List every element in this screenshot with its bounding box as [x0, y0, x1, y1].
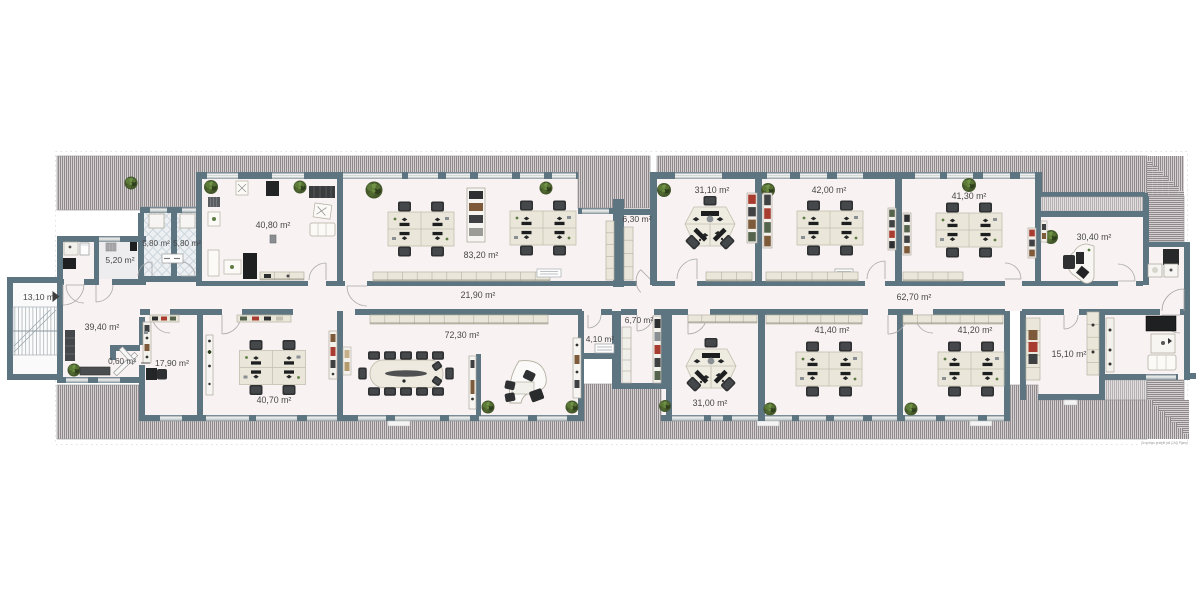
svg-text:72,30 m²: 72,30 m²: [445, 330, 480, 340]
svg-text:83,20 m²: 83,20 m²: [464, 250, 499, 260]
svg-text:41,20 m²: 41,20 m²: [958, 325, 993, 335]
svg-text:41,40 m²: 41,40 m²: [815, 325, 850, 335]
svg-text:39,40 m²: 39,40 m²: [85, 322, 120, 332]
svg-text:Grundriss erstellt mit CAD Pla: Grundriss erstellt mit CAD Planer: [1141, 441, 1189, 445]
svg-text:21,90 m²: 21,90 m²: [461, 290, 496, 300]
svg-text:13,10 m²: 13,10 m²: [23, 292, 57, 302]
svg-text:17,90 m²: 17,90 m²: [155, 358, 189, 368]
svg-text:6,30 m²: 6,30 m²: [622, 214, 651, 224]
svg-text:5,80 m²: 5,80 m²: [173, 239, 201, 248]
svg-text:30,40 m²: 30,40 m²: [1077, 232, 1112, 242]
svg-text:40,80 m²: 40,80 m²: [256, 220, 291, 230]
svg-text:6,70 m²: 6,70 m²: [625, 315, 654, 325]
svg-text:62,70 m²: 62,70 m²: [897, 292, 932, 302]
svg-text:15,10 m²: 15,10 m²: [1052, 349, 1087, 359]
svg-text:42,00 m²: 42,00 m²: [812, 185, 847, 195]
svg-text:5,80 m²: 5,80 m²: [142, 239, 170, 248]
svg-text:0,60 m²: 0,60 m²: [108, 357, 136, 366]
svg-text:31,00 m²: 31,00 m²: [693, 398, 728, 408]
svg-text:5,20 m²: 5,20 m²: [105, 255, 134, 265]
svg-text:40,70 m²: 40,70 m²: [257, 395, 292, 405]
svg-text:41,30 m²: 41,30 m²: [952, 191, 987, 201]
svg-text:31,10 m²: 31,10 m²: [695, 185, 730, 195]
svg-text:4,10 m²: 4,10 m²: [586, 334, 615, 344]
